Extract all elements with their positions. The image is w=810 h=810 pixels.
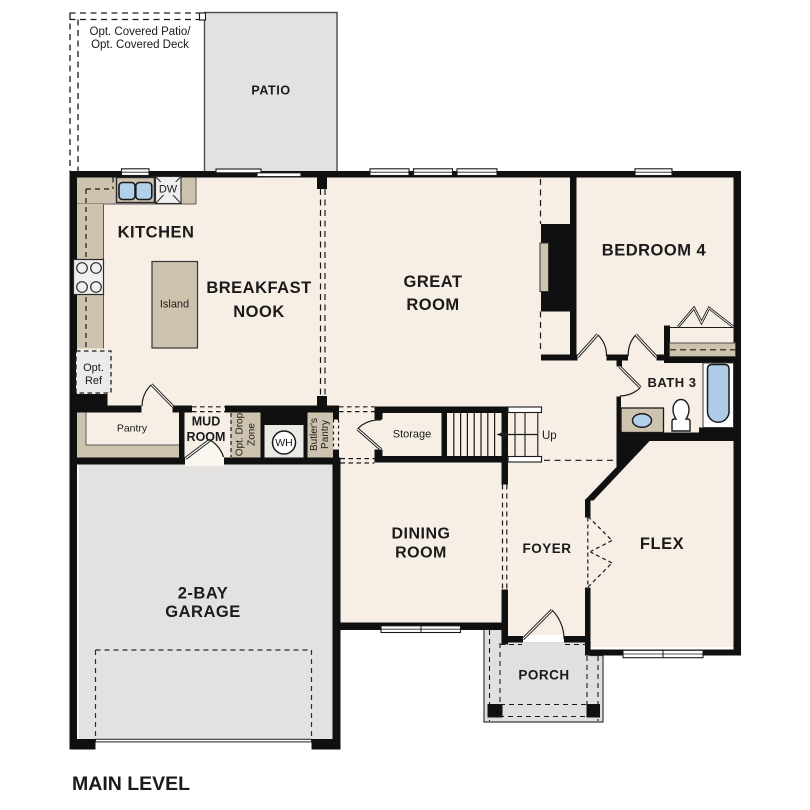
svg-text:Opt.: Opt.: [83, 362, 104, 374]
svg-text:ROOM: ROOM: [406, 296, 459, 314]
svg-text:Island: Island: [160, 299, 189, 311]
svg-text:Pantry: Pantry: [117, 423, 148, 435]
svg-text:Storage: Storage: [393, 429, 432, 441]
svg-text:Opt. Drop: Opt. Drop: [235, 412, 246, 456]
svg-text:NOOK: NOOK: [233, 303, 285, 321]
svg-text:Pantry: Pantry: [320, 420, 331, 449]
svg-text:FOYER: FOYER: [522, 541, 571, 556]
svg-text:MUD: MUD: [192, 415, 220, 429]
svg-text:PORCH: PORCH: [518, 668, 569, 683]
svg-text:KITCHEN: KITCHEN: [118, 224, 195, 242]
svg-text:Opt. Covered Patio/: Opt. Covered Patio/: [90, 26, 192, 38]
svg-text:DW: DW: [159, 184, 178, 196]
svg-text:BREAKFAST: BREAKFAST: [206, 279, 311, 297]
svg-text:WH: WH: [275, 437, 293, 449]
svg-text:PATIO: PATIO: [251, 84, 290, 98]
svg-text:MAIN LEVEL: MAIN LEVEL: [72, 773, 190, 795]
svg-text:Opt. Covered Deck: Opt. Covered Deck: [91, 39, 189, 51]
svg-text:Butler's: Butler's: [309, 418, 320, 451]
svg-text:2-BAY: 2-BAY: [178, 585, 229, 603]
svg-text:BEDROOM 4: BEDROOM 4: [602, 242, 707, 260]
svg-text:GREAT: GREAT: [403, 273, 462, 291]
svg-text:Zone: Zone: [247, 423, 258, 446]
svg-text:Ref: Ref: [85, 375, 103, 387]
svg-text:GARAGE: GARAGE: [165, 603, 240, 621]
svg-text:DINING: DINING: [392, 526, 451, 543]
svg-text:ROOM: ROOM: [395, 545, 447, 562]
svg-text:FLEX: FLEX: [640, 535, 684, 553]
svg-text:BATH 3: BATH 3: [648, 375, 697, 390]
svg-text:ROOM: ROOM: [187, 430, 226, 444]
svg-text:Up: Up: [542, 430, 557, 442]
